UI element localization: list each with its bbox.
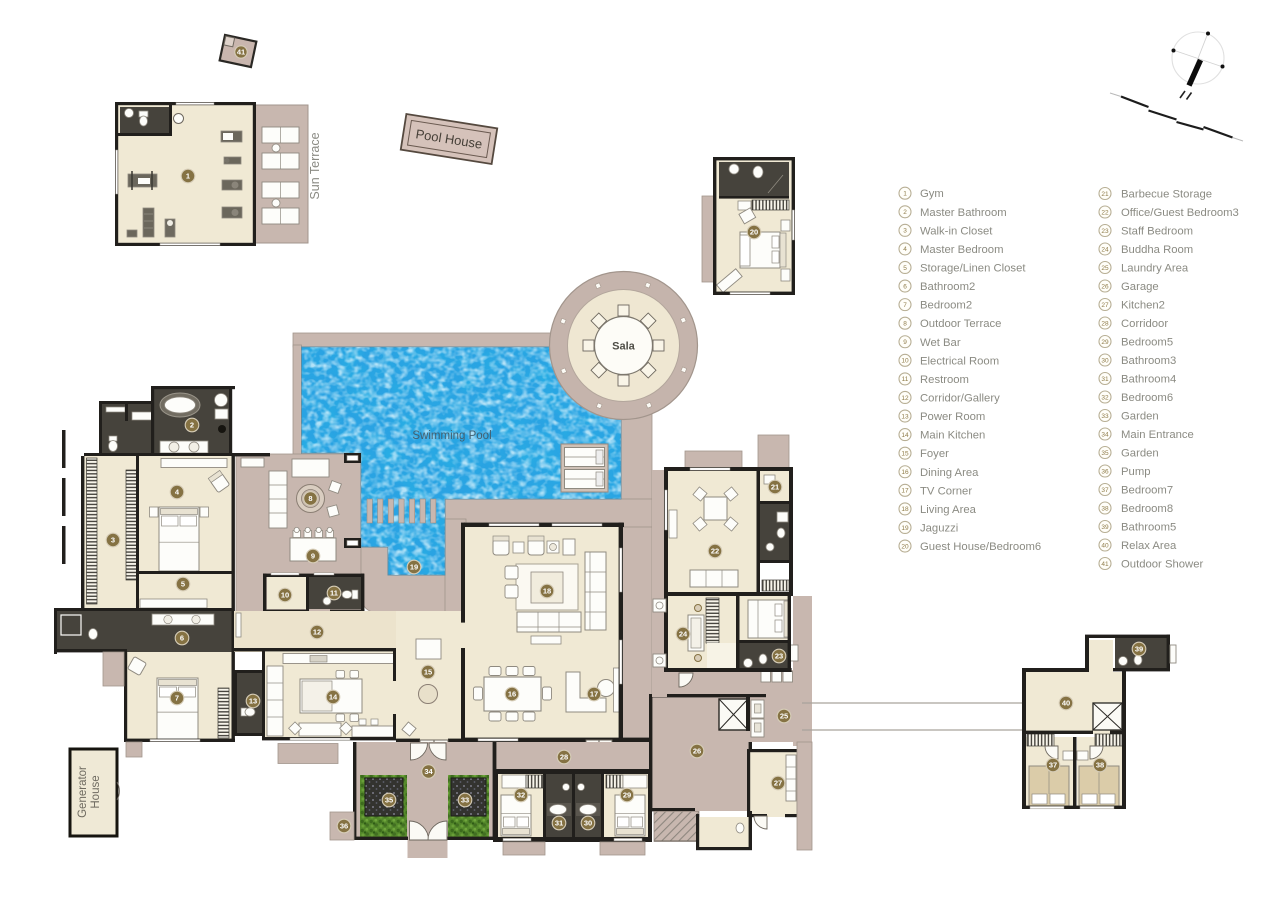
svg-text:23: 23 [775,652,783,661]
svg-text:4: 4 [903,246,907,253]
svg-text:Laundry Area: Laundry Area [1121,263,1189,275]
svg-text:Storage/Linen Closet: Storage/Linen Closet [920,262,1026,274]
svg-text:House: House [90,775,102,808]
svg-text:Master Bedroom: Master Bedroom [920,244,1004,256]
svg-text:Foyer: Foyer [920,448,949,460]
svg-text:Bathroom3: Bathroom3 [1121,355,1176,367]
svg-text:Walk-in Closet: Walk-in Closet [920,225,993,237]
svg-text:Pump: Pump [1121,466,1151,478]
svg-text:18: 18 [901,506,909,513]
svg-text:41: 41 [1101,561,1109,568]
svg-text:3: 3 [111,536,115,545]
svg-text:Bedroom7: Bedroom7 [1121,485,1173,497]
svg-text:39: 39 [1101,524,1109,531]
svg-text:15: 15 [901,450,909,457]
svg-text:25: 25 [780,712,788,721]
svg-text:36: 36 [1101,468,1109,475]
svg-text:22: 22 [711,547,719,556]
svg-text:21: 21 [771,483,779,492]
svg-text:Main Kitchen: Main Kitchen [920,430,985,442]
svg-text:17: 17 [901,488,909,495]
svg-text:Jaguzzi: Jaguzzi [920,522,958,534]
svg-text:Dining Area: Dining Area [920,467,979,479]
svg-text:Swimming Pool: Swimming Pool [412,430,491,442]
svg-text:9: 9 [903,339,907,346]
svg-text:Outdoor Shower: Outdoor Shower [1121,559,1203,571]
svg-text:25: 25 [1101,265,1109,272]
svg-text:20: 20 [750,228,758,237]
svg-text:33: 33 [1101,413,1109,420]
svg-text:6: 6 [903,283,907,290]
svg-text:Bathroom4: Bathroom4 [1121,374,1176,386]
svg-text:6: 6 [180,634,184,643]
svg-text:41: 41 [237,48,245,57]
svg-text:Garage: Garage [1121,281,1159,293]
svg-text:22: 22 [1101,209,1109,216]
svg-text:11: 11 [330,589,338,598]
svg-text:Outdoor Terrace: Outdoor Terrace [920,318,1001,330]
svg-text:24: 24 [1101,246,1109,253]
svg-text:17: 17 [590,690,598,699]
svg-text:34: 34 [424,767,433,776]
svg-text:39: 39 [1135,645,1143,654]
svg-text:Bedroom5: Bedroom5 [1121,337,1173,349]
svg-text:18: 18 [543,587,551,596]
svg-text:Restroom: Restroom [920,374,969,386]
svg-text:38: 38 [1101,505,1109,512]
svg-text:32: 32 [517,791,525,800]
svg-text:27: 27 [774,779,782,788]
svg-text:32: 32 [1101,394,1109,401]
svg-text:7: 7 [175,694,179,703]
svg-text:Guest House/Bedroom6: Guest House/Bedroom6 [920,541,1041,553]
svg-text:19: 19 [901,525,909,532]
svg-text:Bathroom2: Bathroom2 [920,281,975,293]
svg-text:Bedroom8: Bedroom8 [1121,503,1173,515]
svg-text:Living Area: Living Area [920,504,977,516]
svg-text:26: 26 [693,747,701,756]
svg-text:8: 8 [308,494,312,503]
svg-text:30: 30 [584,819,592,828]
svg-text:19: 19 [410,563,418,572]
svg-text:27: 27 [1101,302,1109,309]
svg-text:37: 37 [1101,487,1109,494]
svg-text:Kitchen2: Kitchen2 [1121,300,1165,312]
svg-text:Garden: Garden [1121,448,1159,460]
svg-text:Garden: Garden [1121,411,1159,423]
svg-text:5: 5 [181,580,185,589]
svg-text:35: 35 [385,796,393,805]
svg-text:Generator: Generator [77,766,89,818]
svg-text:Sala: Sala [612,341,636,353]
svg-text:12: 12 [901,395,909,402]
svg-text:11: 11 [902,376,909,383]
svg-text:Staff Bedroom: Staff Bedroom [1121,226,1193,238]
svg-text:13: 13 [249,697,257,706]
svg-text:29: 29 [1101,339,1109,346]
svg-text:Bedroom2: Bedroom2 [920,300,972,312]
svg-text:37: 37 [1049,761,1057,770]
svg-text:31: 31 [1101,376,1109,383]
svg-text:Corridoor: Corridoor [1121,318,1168,330]
svg-text:2: 2 [903,209,907,216]
svg-text:Gym: Gym [920,188,944,200]
svg-text:1: 1 [186,172,190,181]
svg-text:33: 33 [461,796,469,805]
svg-text:36: 36 [340,822,348,831]
svg-text:38: 38 [1096,761,1104,770]
svg-text:Master Bathroom: Master Bathroom [920,207,1007,219]
svg-text:24: 24 [679,630,688,639]
svg-text:8: 8 [903,320,907,327]
svg-text:Electrical Room: Electrical Room [920,355,999,367]
svg-text:1: 1 [903,191,907,198]
svg-text:Power Room: Power Room [920,411,985,423]
svg-text:16: 16 [508,690,516,699]
svg-text:28: 28 [1101,320,1109,327]
svg-text:14: 14 [329,693,338,702]
svg-text:31: 31 [555,819,563,828]
svg-text:34: 34 [1101,431,1109,438]
svg-text:21: 21 [1101,191,1109,198]
svg-text:10: 10 [901,358,909,365]
svg-text:Main Entrance: Main Entrance [1121,429,1194,441]
svg-text:Wet Bar: Wet Bar [920,337,961,349]
svg-text:10: 10 [281,591,289,600]
svg-text:Bathroom5: Bathroom5 [1121,522,1176,534]
svg-text:13: 13 [901,413,909,420]
svg-text:14: 14 [901,432,909,439]
svg-text:40: 40 [1101,542,1109,549]
svg-text:12: 12 [313,628,321,637]
svg-text:Relax Area: Relax Area [1121,540,1177,552]
svg-text:26: 26 [1101,283,1109,290]
svg-text:23: 23 [1101,228,1109,235]
svg-text:5: 5 [903,265,907,272]
svg-text:TV Corner: TV Corner [920,485,972,497]
svg-text:28: 28 [560,753,568,762]
svg-text:Bedroom6: Bedroom6 [1121,392,1173,404]
svg-text:2: 2 [190,421,194,430]
svg-text:Corridor/Gallery: Corridor/Gallery [920,392,1000,404]
svg-text:35: 35 [1101,450,1109,457]
svg-text:Office/Guest Bedroom3: Office/Guest Bedroom3 [1121,207,1239,219]
svg-text:40: 40 [1062,699,1070,708]
svg-text:Sun Terrace: Sun Terrace [308,132,322,199]
svg-text:9: 9 [311,552,315,561]
svg-text:Barbecue Storage: Barbecue Storage [1121,189,1212,201]
svg-text:16: 16 [901,469,909,476]
svg-text:30: 30 [1101,357,1109,364]
svg-text:3: 3 [903,228,907,235]
svg-text:Buddha Room: Buddha Room [1121,244,1193,256]
svg-text:7: 7 [903,302,907,309]
svg-text:20: 20 [901,543,909,550]
svg-text:15: 15 [424,668,432,677]
svg-text:29: 29 [623,791,631,800]
